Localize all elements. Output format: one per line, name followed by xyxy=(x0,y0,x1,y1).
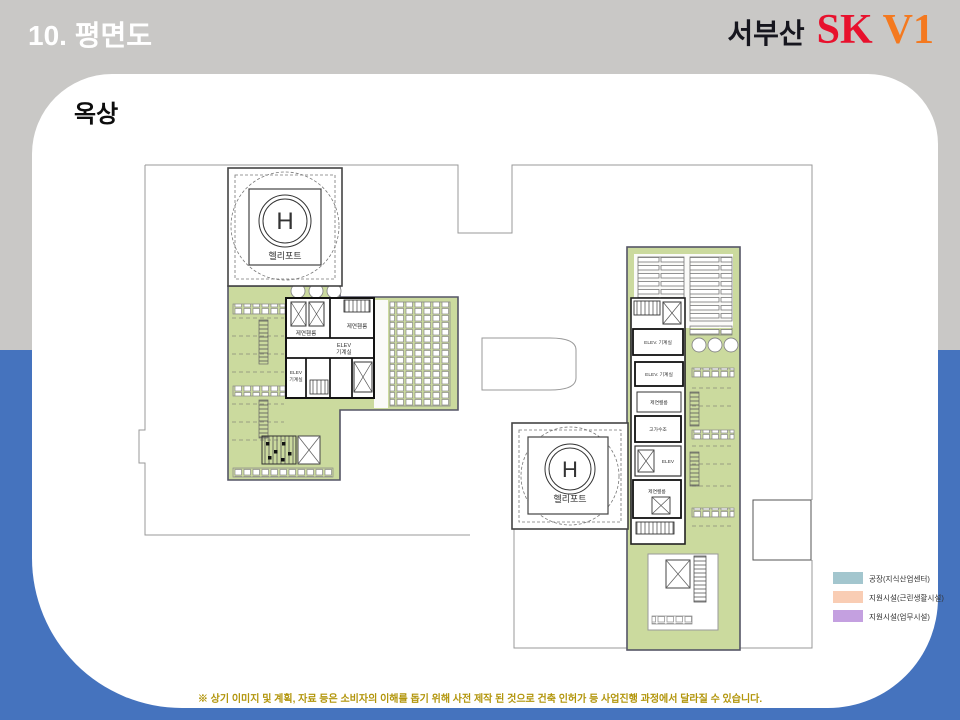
legend-label-factory: 공장(지식산업센터) xyxy=(869,574,930,584)
room-label-elev-small: ELEV xyxy=(662,459,675,465)
stair-hatch xyxy=(636,522,674,534)
room-label-elev2: ELEV xyxy=(290,370,303,376)
site-annex-block xyxy=(753,500,811,560)
heliport-label: 헬리포트 xyxy=(553,494,586,504)
stair-hatch xyxy=(634,301,660,315)
room-label-smoke2: 제연휀룸 xyxy=(648,488,666,495)
heliport-h-mark: H xyxy=(562,457,578,482)
right-building: ELEV. 기계실 ELEV. 기계실 제연휀룸 고가수조 ELEV 제연휀룸 xyxy=(627,247,740,650)
room-label-elev2b: 기계실 xyxy=(289,376,302,383)
heliport-label: 헬리포트 xyxy=(268,251,301,261)
heliport-left: H 헬리포트 xyxy=(228,168,342,286)
right-building-courtyard xyxy=(648,554,718,630)
left-building-core: 제연휀룸 제연휀룸 ELEV 기계실 ELEV 기계실 xyxy=(286,298,374,398)
stair-hatch xyxy=(344,300,370,312)
room-label-elev1b: 기계실 xyxy=(336,348,351,356)
room-label-water-tank: 고가수조 xyxy=(649,426,667,433)
stair-hatch xyxy=(310,380,328,394)
right-building-core: ELEV. 기계실 ELEV. 기계실 제연휀룸 고가수조 ELEV 제연휀룸 xyxy=(631,298,685,544)
stair-hatch xyxy=(694,556,706,602)
room-label-smoke1: 제연휀룸 xyxy=(296,329,317,337)
planter-box-row xyxy=(233,386,285,396)
legend-label-office: 지원시설(업무시설) xyxy=(869,612,930,622)
legend-swatch-neighborhood xyxy=(833,591,863,603)
room-label-smoke1: 제연휀룸 xyxy=(650,399,668,406)
planter-box-row xyxy=(233,304,285,314)
equipment-louver xyxy=(259,400,268,438)
room-label-elev-machine1: ELEV. 기계실 xyxy=(644,339,672,346)
legend-swatch-factory xyxy=(833,572,863,584)
rooftop-tanks xyxy=(692,338,738,352)
plan-legend: 공장(지식산업센터) 지원시설(근린생활시설) 지원시설(업무시설) xyxy=(833,572,944,622)
slide: { "header": { "title": "10. 평면도", "brand… xyxy=(0,0,960,720)
equipment-louver xyxy=(259,320,268,364)
louver-bank xyxy=(390,302,450,406)
louver-bank xyxy=(690,257,732,321)
site-rounded-block xyxy=(482,338,576,390)
disclaimer-text: ※ 상기 이미지 및 계획, 자료 등은 소비자의 이해를 돕기 위해 사전 제… xyxy=(0,690,960,705)
room-label-elev1: ELEV xyxy=(337,343,352,349)
room-label-smoke2: 제연휀룸 xyxy=(347,322,368,330)
legend-swatch-office xyxy=(833,610,863,622)
room-label-elev-machine2: ELEV. 기계실 xyxy=(645,371,673,378)
heliport-right: H 헬리포트 xyxy=(512,423,628,529)
heliport-h-mark: H xyxy=(276,208,293,235)
floor-plan-canvas: 제연휀룸 제연휀룸 ELEV 기계실 ELEV 기계실 H 헬리 xyxy=(0,0,960,720)
left-building: 제연휀룸 제연휀룸 ELEV 기계실 ELEV 기계실 xyxy=(228,284,458,480)
legend-label-neighborhood: 지원시설(근린생활시설) xyxy=(869,593,944,603)
